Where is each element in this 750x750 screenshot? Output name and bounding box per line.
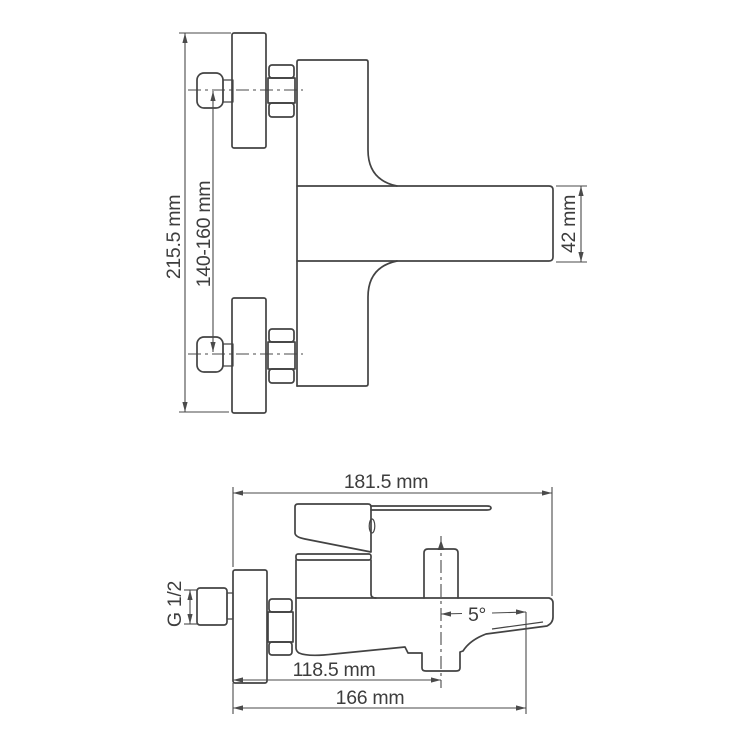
arrowhead-up [578, 186, 583, 196]
hex-nut-side-upper [269, 599, 292, 612]
dim-label-overall-height: 215.5 mm [163, 195, 185, 279]
thread-connector-g12 [197, 588, 227, 625]
arrowhead-up [187, 590, 192, 600]
dim-label-outlet-offset: 118.5 mm [293, 659, 376, 681]
arrowhead-right [516, 705, 526, 710]
dim-thread: G 1/2 [164, 581, 198, 627]
dim-label-thread: G 1/2 [164, 581, 186, 627]
front-view: 215.5 mm 140-160 mm 42 mm [163, 33, 587, 413]
arrowhead-right [542, 490, 552, 495]
handle-lever [371, 506, 491, 510]
hex-nut-bottom-lower [269, 369, 294, 383]
wall-flange-bottom [232, 298, 266, 413]
arrowhead-right [431, 677, 441, 682]
dim-label-overall-length: 181.5 mm [344, 471, 428, 493]
dim-label-spout-height: 42 mm [558, 195, 580, 253]
arrowhead-left [233, 490, 243, 495]
dim-spout-length: 166 mm [233, 612, 526, 714]
arrowhead-left [233, 705, 243, 710]
hex-nut-top-upper [269, 65, 294, 78]
dim-label-spout-angle: 5° [468, 604, 486, 626]
spout-front [297, 186, 553, 261]
arrowhead-up [210, 91, 215, 101]
faucet-drawing-svg: 215.5 mm 140-160 mm 42 mm [0, 0, 750, 750]
hex-nut-top-lower [269, 103, 294, 117]
arrowhead-left [441, 611, 451, 616]
dim-spout-height: 42 mm [556, 186, 587, 262]
hex-nut-side-middle [268, 612, 293, 642]
hex-nut-bottom [268, 329, 295, 383]
arrowhead-down [210, 342, 215, 352]
arrowhead-down [187, 614, 192, 624]
arrowhead-left [233, 677, 243, 682]
dim-mounting-centers: 140-160 mm [193, 91, 216, 352]
hex-nut-side [268, 599, 293, 655]
dim-spout-angle: 5° [441, 604, 526, 626]
arrowhead-up [182, 33, 187, 43]
arrowhead-right [516, 609, 526, 614]
faucet-body-front-lower [297, 261, 397, 386]
dim-overall-length: 181.5 mm [233, 471, 552, 596]
arrowhead-down [182, 402, 187, 412]
dim-label-mounting-centers: 140-160 mm [193, 181, 215, 287]
faucet-body-front-upper [297, 60, 397, 386]
side-view: 181.5 mm G 1/2 5° 118.5 mm [164, 471, 553, 714]
handle-cap [295, 504, 371, 552]
hex-nut-top [268, 65, 295, 117]
dim-label-spout-length: 166 mm [336, 687, 405, 709]
hex-nut-bottom-upper [269, 329, 294, 342]
wall-flange-side [233, 570, 267, 683]
technical-drawing-page: 215.5 mm 140-160 mm 42 mm [0, 0, 750, 750]
handle-set-screw [369, 519, 375, 533]
hex-nut-side-lower [269, 642, 292, 655]
cartridge-collar [296, 554, 371, 560]
hex-nut-bottom-middle [268, 342, 295, 369]
thread-connector-neck [227, 593, 233, 619]
body-side-right-edge [371, 560, 376, 598]
